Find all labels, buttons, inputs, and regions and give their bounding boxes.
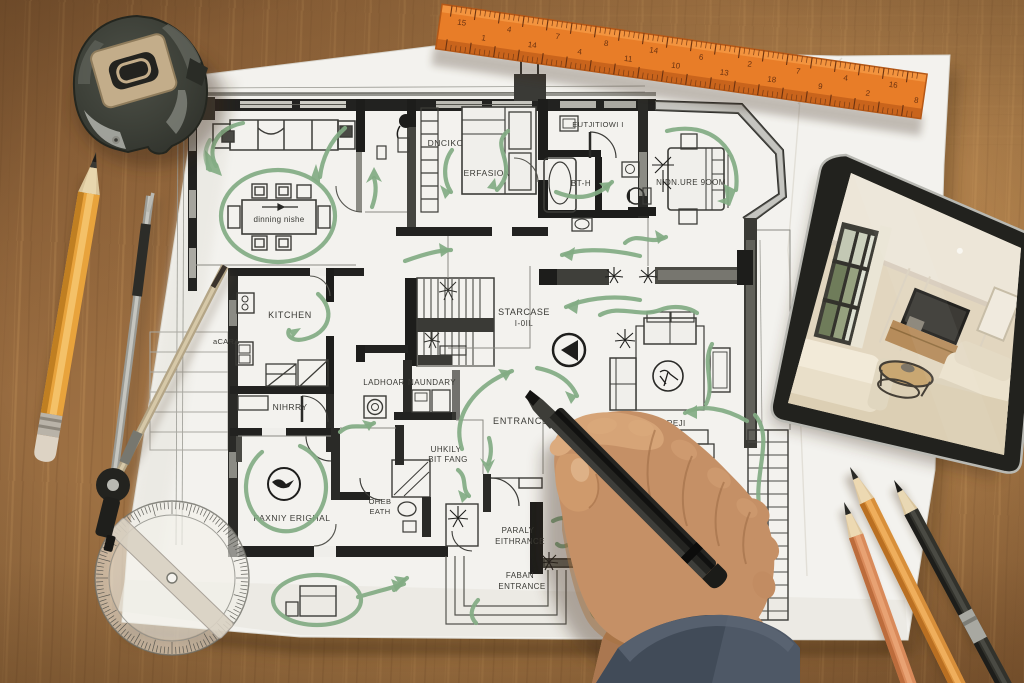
svg-text:BIT FANG: BIT FANG xyxy=(428,455,468,464)
svg-text:PARALY: PARALY xyxy=(502,526,535,535)
svg-text:EATH: EATH xyxy=(369,507,390,516)
svg-text:NIHRRY: NIHRRY xyxy=(273,402,308,412)
svg-text:NAUNDARY: NAUNDARY xyxy=(408,378,456,387)
svg-text:STARCASE: STARCASE xyxy=(498,307,550,317)
svg-text:EITHRANCE: EITHRANCE xyxy=(495,537,545,546)
svg-text:KITCHEN: KITCHEN xyxy=(268,310,312,320)
svg-text:LADHOAR: LADHOAR xyxy=(363,378,404,387)
svg-text:aCARA: aCARA xyxy=(213,337,240,346)
svg-text:BT-H: BT-H xyxy=(571,179,591,188)
svg-text:I-0IL: I-0IL xyxy=(515,319,534,328)
svg-text:OHEB: OHEB xyxy=(369,497,392,506)
svg-text:EUTJITIOWI I: EUTJITIOWI I xyxy=(572,120,623,129)
svg-text:dinning nishe: dinning nishe xyxy=(253,215,304,224)
svg-text:FABAN: FABAN xyxy=(506,571,534,580)
svg-text:NIDN.URE 9OOM: NIDN.URE 9OOM xyxy=(656,178,726,187)
svg-text:UHKILY: UHKILY xyxy=(431,445,462,454)
svg-text:ENTRANCE: ENTRANCE xyxy=(498,582,545,591)
